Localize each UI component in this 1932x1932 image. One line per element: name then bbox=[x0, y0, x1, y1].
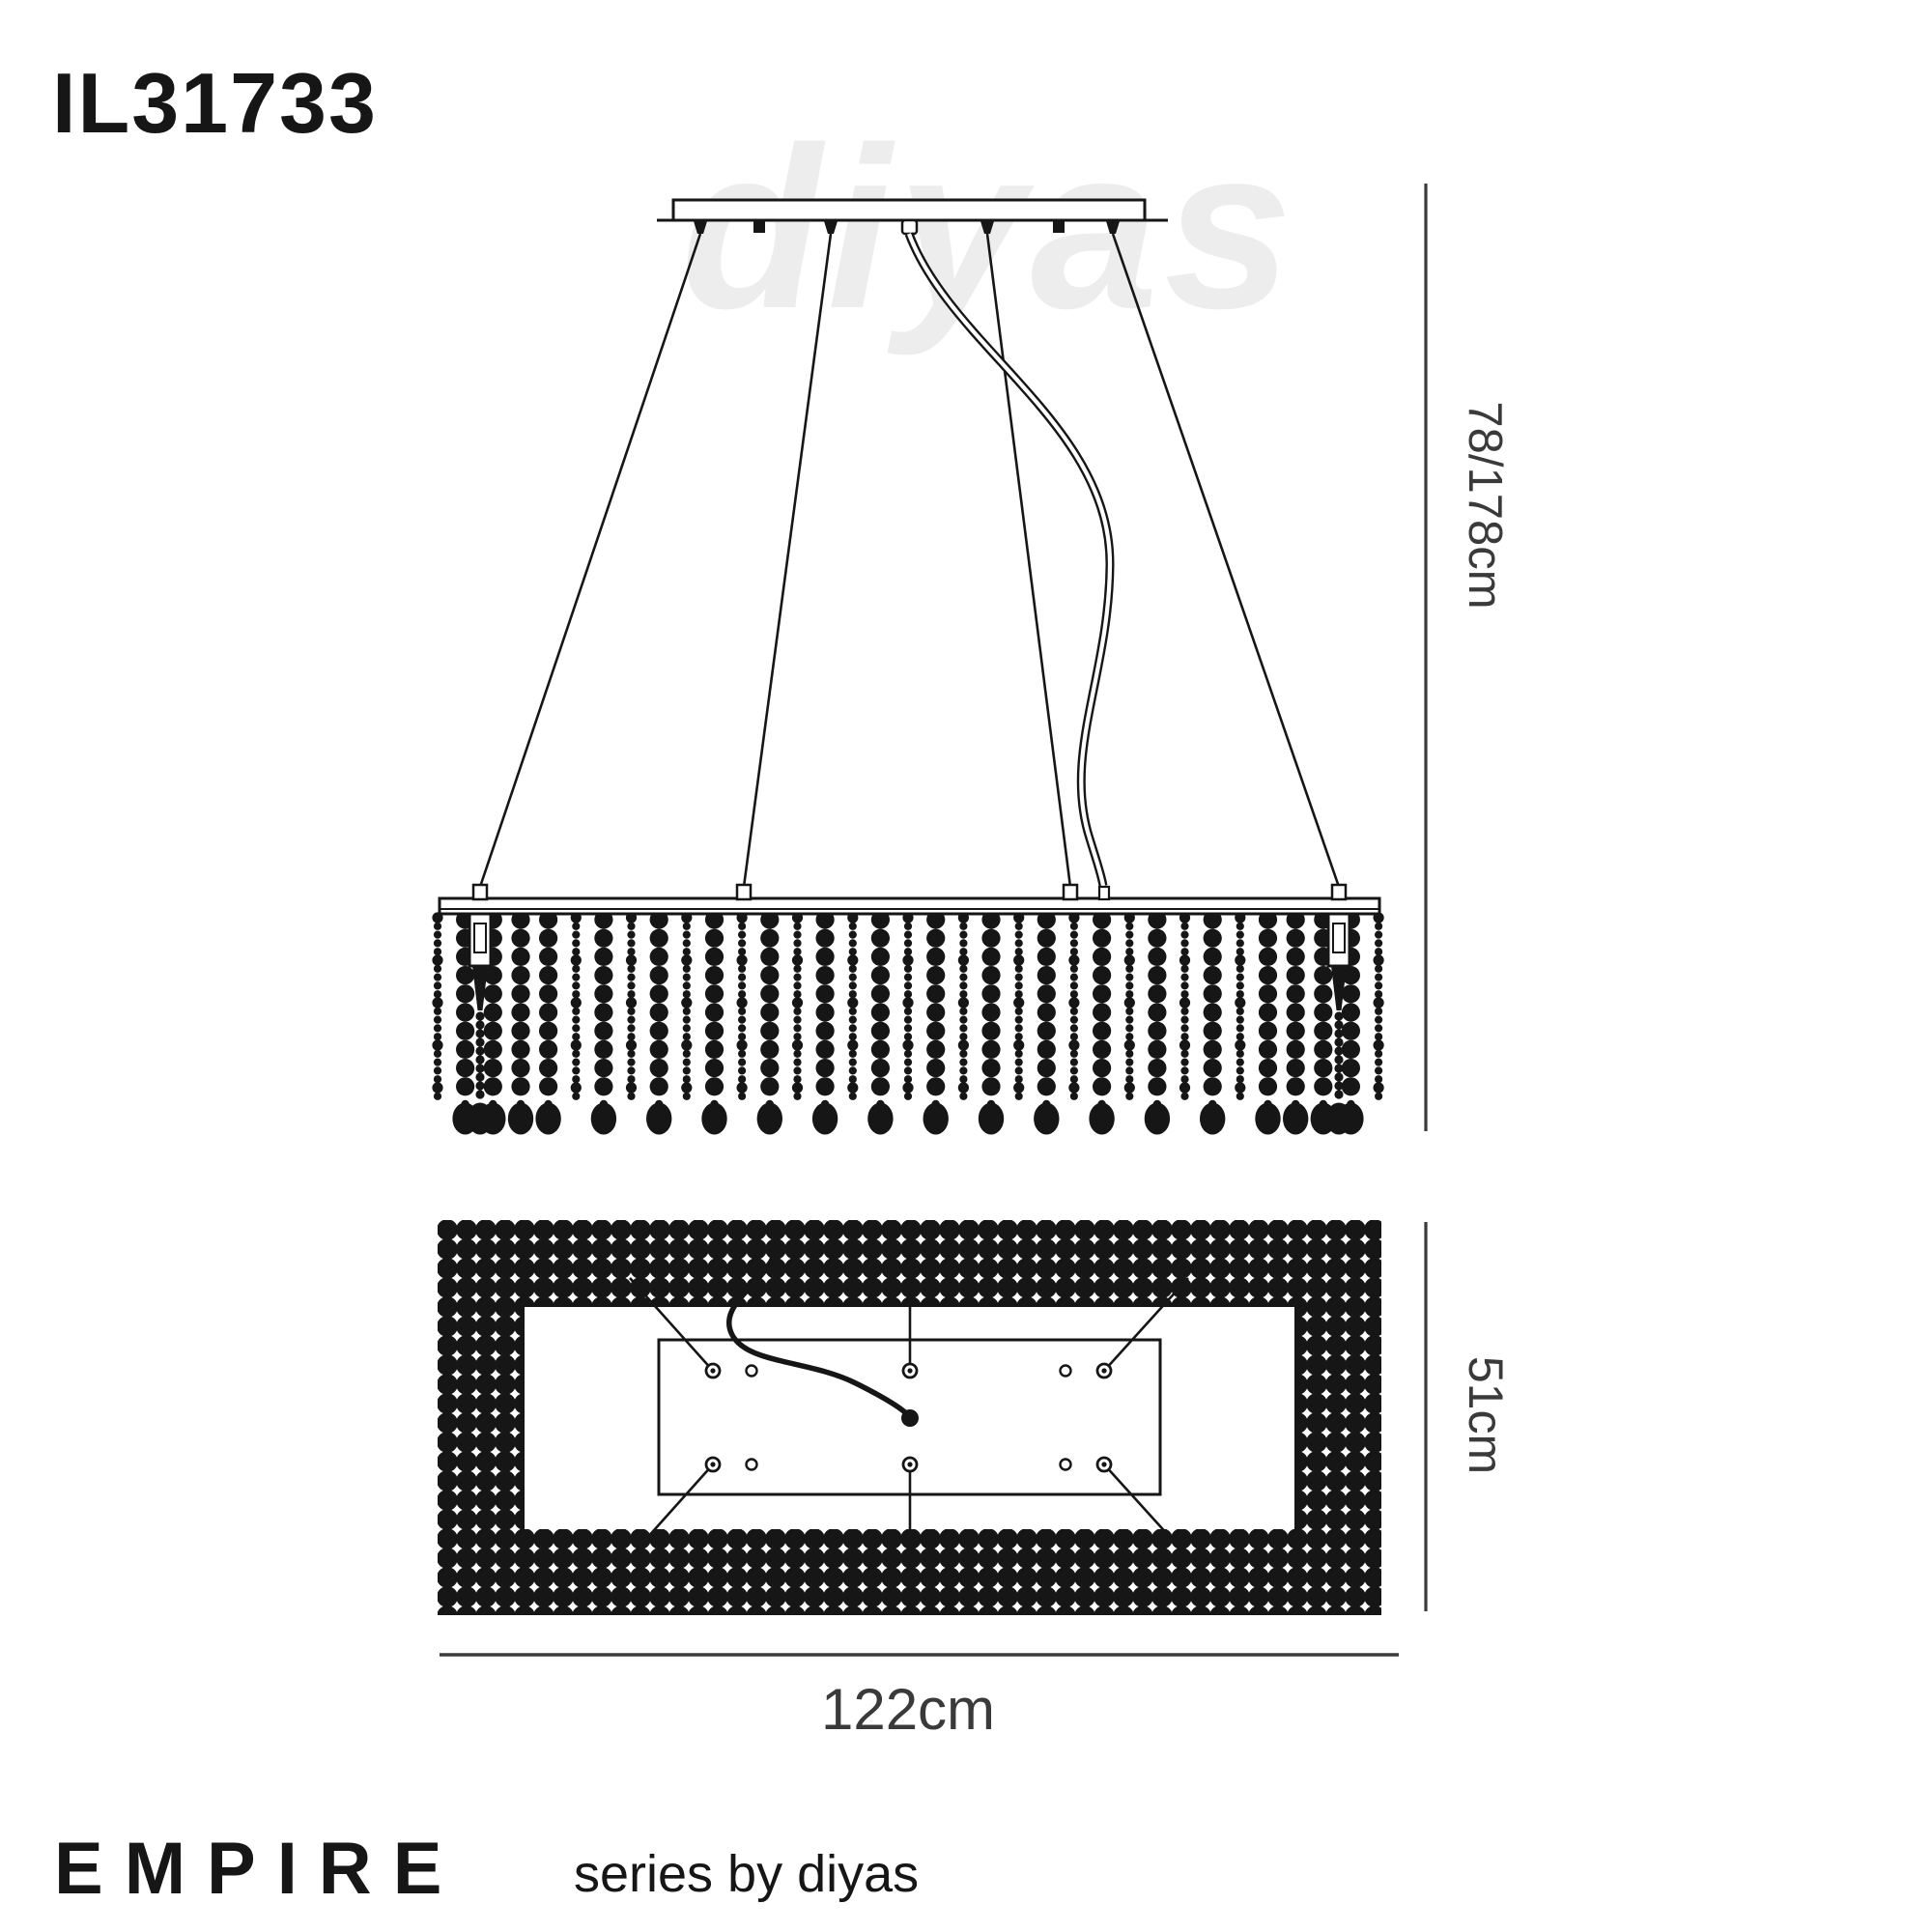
bead-strand bbox=[701, 910, 726, 1134]
depth-dimension-label: 51cm bbox=[1459, 1356, 1513, 1474]
width-dimension-label: 122cm bbox=[821, 1677, 995, 1742]
plan-view bbox=[438, 1220, 1381, 1615]
suspension-wire bbox=[480, 234, 700, 887]
junction-box bbox=[1053, 221, 1065, 233]
series-byline: series by diyas bbox=[574, 1845, 919, 1903]
series-logo: EMPIRE bbox=[54, 1828, 463, 1910]
junction-box bbox=[753, 221, 765, 233]
bead-strand bbox=[1200, 910, 1225, 1134]
wire-grip bbox=[473, 885, 487, 899]
bead-strand bbox=[847, 912, 858, 1100]
bead-strand bbox=[681, 912, 692, 1100]
drawing-sheet: diyas bbox=[0, 0, 1932, 1932]
plan-cord-end bbox=[901, 1409, 919, 1427]
wire-grip bbox=[1332, 885, 1346, 899]
technical-drawing: diyas bbox=[0, 0, 1932, 1932]
bead-strand bbox=[979, 910, 1004, 1134]
bead-strand bbox=[1034, 910, 1059, 1134]
bead-strand bbox=[923, 910, 949, 1134]
bead-strand bbox=[591, 910, 616, 1134]
bead-strand bbox=[867, 910, 893, 1134]
bead-strand bbox=[792, 912, 803, 1100]
bead-strand bbox=[626, 912, 637, 1100]
chandelier-bar bbox=[440, 885, 1379, 914]
wire-grip bbox=[1064, 885, 1077, 899]
bead-strand bbox=[1235, 912, 1245, 1100]
mounting-hole bbox=[747, 1366, 757, 1377]
bead-strand bbox=[646, 910, 671, 1134]
bead-strand bbox=[1255, 910, 1280, 1134]
bead-strand bbox=[535, 910, 560, 1134]
mounting-hole bbox=[1061, 1366, 1071, 1377]
bead-strand bbox=[1013, 912, 1024, 1100]
bead-strand bbox=[1068, 912, 1079, 1100]
bead-strand bbox=[902, 912, 913, 1100]
bead-strand bbox=[1124, 912, 1135, 1100]
cord-collar bbox=[902, 220, 917, 234]
bead-strand bbox=[958, 912, 969, 1100]
bead-strands bbox=[432, 910, 1383, 1134]
bead-strand bbox=[1179, 912, 1190, 1100]
bead-strand bbox=[432, 912, 442, 1100]
product-code: IL31733 bbox=[52, 55, 378, 151]
mounting-hole bbox=[747, 1460, 757, 1470]
cord-grip bbox=[1099, 887, 1109, 899]
bead-strand bbox=[757, 910, 782, 1134]
bead-strand bbox=[1145, 910, 1170, 1134]
bead-strand bbox=[737, 912, 748, 1100]
wire-grip bbox=[737, 885, 751, 899]
bead-strand bbox=[812, 910, 838, 1134]
bead-strand bbox=[1089, 910, 1114, 1134]
mounting-hole bbox=[1061, 1460, 1071, 1470]
bead-strand bbox=[508, 910, 533, 1134]
bead-strand bbox=[1283, 910, 1308, 1134]
generated-linework bbox=[432, 184, 1426, 1655]
height-dimension-label: 78/178cm bbox=[1459, 401, 1511, 609]
bead-strand bbox=[571, 912, 582, 1100]
bead-strand bbox=[1374, 912, 1384, 1100]
